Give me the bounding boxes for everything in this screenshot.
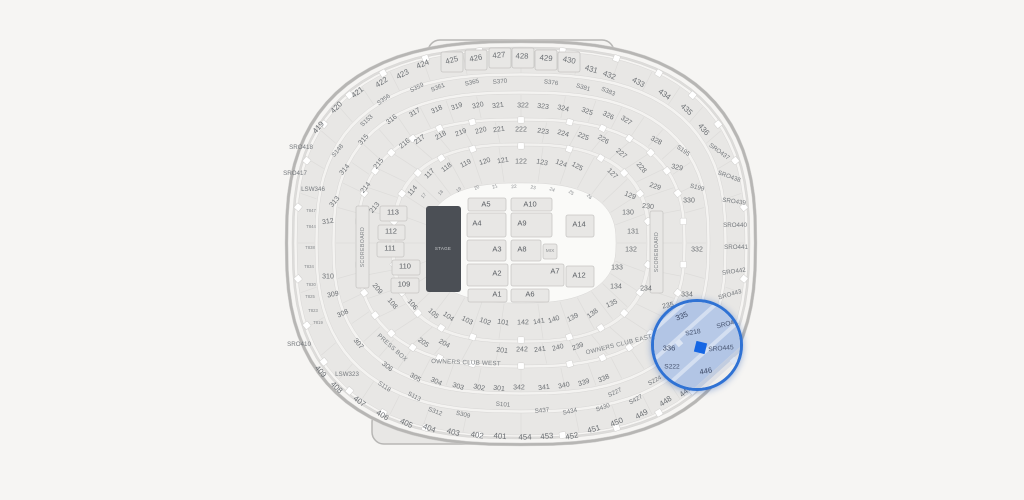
section-135[interactable]: 135 xyxy=(605,298,619,309)
section-430[interactable]: 430 xyxy=(562,56,576,66)
section-432[interactable]: 432 xyxy=(602,70,617,82)
section-24: 24 xyxy=(549,187,556,194)
section-s118[interactable]: S118 xyxy=(376,380,391,393)
section-sro440[interactable]: SRO440 xyxy=(723,223,747,229)
section-s434[interactable]: S434 xyxy=(562,407,577,416)
section-209[interactable]: 209 xyxy=(371,282,384,295)
section-120[interactable]: 120 xyxy=(478,157,491,167)
section-102[interactable]: 102 xyxy=(478,317,491,327)
section-338[interactable]: 338 xyxy=(597,373,611,384)
section-20: 20 xyxy=(473,185,480,192)
section-141[interactable]: 141 xyxy=(533,318,546,327)
section-sro438[interactable]: SRO438 xyxy=(717,170,741,184)
section-lsw323[interactable]: LSW323 xyxy=(335,372,359,378)
section-310[interactable]: 310 xyxy=(322,274,334,281)
section-221[interactable]: 221 xyxy=(493,126,506,135)
section-21: 21 xyxy=(492,184,499,190)
section-239[interactable]: 239 xyxy=(571,342,584,353)
section-341[interactable]: 341 xyxy=(538,384,550,392)
section-312[interactable]: 312 xyxy=(322,218,335,227)
section-329[interactable]: 329 xyxy=(671,163,684,172)
lower-section-110-label[interactable]: 110 xyxy=(399,263,411,271)
section-123[interactable]: 123 xyxy=(536,158,549,167)
section-t844[interactable]: T844 xyxy=(306,225,316,229)
scoreboard-label: SCOREBOARD xyxy=(655,232,660,273)
section-423[interactable]: 423 xyxy=(395,69,410,82)
floor-section-a12-label[interactable]: A12 xyxy=(572,272,585,280)
section-t819[interactable]: T819 xyxy=(313,321,323,325)
section-140[interactable]: 140 xyxy=(547,315,560,325)
owners-club-west-label: OWNERS CLUB WEST xyxy=(431,359,501,368)
press-box-label: PRESS BOX xyxy=(376,333,408,363)
section-lsw346[interactable]: LSW346 xyxy=(301,187,325,193)
section-s361[interactable]: S361 xyxy=(430,82,446,93)
section-339[interactable]: 339 xyxy=(577,378,590,388)
section-s381[interactable]: S381 xyxy=(575,83,591,93)
section-404[interactable]: 404 xyxy=(422,423,437,435)
lower-section-112-label[interactable]: 112 xyxy=(385,228,397,236)
stage-label: STAGE xyxy=(435,247,451,252)
section-425[interactable]: 425 xyxy=(445,55,460,66)
section-321[interactable]: 321 xyxy=(492,102,504,110)
section-434[interactable]: 434 xyxy=(656,88,671,102)
lower-section-111-label[interactable]: 111 xyxy=(384,245,395,253)
section-332[interactable]: 332 xyxy=(691,247,703,254)
section-s148[interactable]: S148 xyxy=(331,143,345,158)
section-s312[interactable]: S312 xyxy=(427,407,443,418)
section-315[interactable]: 315 xyxy=(358,133,371,146)
section-sro442[interactable]: SRO442 xyxy=(722,267,746,276)
owners-club-east-label: OWNERS CLUB EAST xyxy=(585,334,653,356)
section-340[interactable]: 340 xyxy=(558,381,571,390)
section-205[interactable]: 205 xyxy=(416,337,430,350)
section-106[interactable]: 106 xyxy=(406,298,419,311)
section-s376[interactable]: S376 xyxy=(543,79,558,87)
section-317[interactable]: 317 xyxy=(408,107,422,119)
section-222[interactable]: 222 xyxy=(515,127,527,134)
floor-section-a6-label[interactable]: A6 xyxy=(525,291,534,299)
section-228[interactable]: 228 xyxy=(635,161,648,174)
floor-section-a5-label[interactable]: A5 xyxy=(481,201,490,209)
lower-section-113-label[interactable]: 113 xyxy=(387,209,399,217)
section-229[interactable]: 229 xyxy=(648,182,661,192)
section-223[interactable]: 223 xyxy=(537,128,550,137)
section-323[interactable]: 323 xyxy=(537,103,549,111)
section-230[interactable]: 230 xyxy=(642,203,654,211)
floor-section-a9-label[interactable]: A9 xyxy=(517,220,526,228)
section-227[interactable]: 227 xyxy=(614,148,627,161)
section-101[interactable]: 101 xyxy=(497,319,510,328)
section-316[interactable]: 316 xyxy=(385,114,399,127)
section-204[interactable]: 204 xyxy=(437,338,451,350)
section-216[interactable]: 216 xyxy=(398,138,411,151)
section-133[interactable]: 133 xyxy=(611,265,623,272)
section-218[interactable]: 218 xyxy=(434,130,448,142)
section-labels-layer: A5A10A4A9A14A3A8MIXA2A7A12A1A61131121111… xyxy=(0,0,1024,500)
section-408[interactable]: 408 xyxy=(329,381,344,396)
magnified-section-336[interactable]: 336 xyxy=(663,345,676,353)
section-138[interactable]: 138 xyxy=(586,308,600,321)
section-448[interactable]: 448 xyxy=(658,395,673,409)
section-18: 18 xyxy=(437,189,444,196)
section-s370[interactable]: S370 xyxy=(492,78,507,86)
section-219[interactable]: 219 xyxy=(454,128,467,139)
section-325[interactable]: 325 xyxy=(580,107,593,118)
seat-map-viewport[interactable]: A5A10A4A9A14A3A8MIXA2A7A12A1A61131121111… xyxy=(0,0,1024,500)
section-26: 26 xyxy=(585,193,592,200)
section-326[interactable]: 326 xyxy=(601,110,615,122)
section-450[interactable]: 450 xyxy=(610,417,625,429)
section-302[interactable]: 302 xyxy=(473,383,486,392)
section-305[interactable]: 305 xyxy=(408,372,422,384)
section-s430[interactable]: S430 xyxy=(595,403,611,414)
section-19: 19 xyxy=(455,186,462,193)
section-104[interactable]: 104 xyxy=(441,311,455,324)
section-s427[interactable]: S427 xyxy=(628,394,644,406)
section-240[interactable]: 240 xyxy=(551,343,564,353)
section-328[interactable]: 328 xyxy=(649,135,663,147)
section-sro410[interactable]: SRO410 xyxy=(287,342,311,348)
section-214[interactable]: 214 xyxy=(360,181,373,194)
section-118[interactable]: 118 xyxy=(440,162,453,174)
section-421[interactable]: 421 xyxy=(350,86,365,100)
section-428[interactable]: 428 xyxy=(515,53,528,61)
section-405[interactable]: 405 xyxy=(398,418,413,431)
section-342[interactable]: 342 xyxy=(513,384,525,391)
section-119[interactable]: 119 xyxy=(459,158,472,169)
floor-section-mix-label[interactable]: MIX xyxy=(546,249,555,254)
section-319[interactable]: 319 xyxy=(450,102,463,112)
section-318[interactable]: 318 xyxy=(430,104,444,115)
section-103[interactable]: 103 xyxy=(460,315,474,327)
section-sro417[interactable]: SRO417 xyxy=(283,171,307,177)
section-304[interactable]: 304 xyxy=(429,376,443,387)
section-s227[interactable]: S227 xyxy=(607,387,623,399)
section-449[interactable]: 449 xyxy=(634,409,649,422)
section-201[interactable]: 201 xyxy=(496,347,508,355)
section-122[interactable]: 122 xyxy=(515,159,527,166)
section-125[interactable]: 125 xyxy=(570,161,584,173)
section-426[interactable]: 426 xyxy=(469,54,483,64)
lower-section-109-label[interactable]: 109 xyxy=(398,281,411,289)
section-s199[interactable]: S199 xyxy=(689,183,705,193)
section-129[interactable]: 129 xyxy=(623,191,636,202)
section-t825[interactable]: T825 xyxy=(305,295,315,299)
section-s113[interactable]: S113 xyxy=(406,391,421,403)
section-431[interactable]: 431 xyxy=(584,64,599,75)
section-422[interactable]: 422 xyxy=(374,76,389,90)
section-t834[interactable]: T834 xyxy=(304,265,314,269)
section-309[interactable]: 309 xyxy=(327,290,340,299)
section-220[interactable]: 220 xyxy=(474,126,487,136)
section-217[interactable]: 217 xyxy=(413,134,427,147)
section-17: 17 xyxy=(420,192,427,199)
section-241[interactable]: 241 xyxy=(534,346,546,354)
section-324[interactable]: 324 xyxy=(557,104,570,113)
floor-section-a7-label[interactable]: A7 xyxy=(550,268,559,276)
section-215[interactable]: 215 xyxy=(373,157,386,170)
section-454[interactable]: 454 xyxy=(518,434,531,442)
section-sro437[interactable]: SRO437 xyxy=(708,143,731,162)
section-234[interactable]: 234 xyxy=(640,286,652,293)
section-313[interactable]: 313 xyxy=(329,195,342,208)
section-213[interactable]: 213 xyxy=(369,201,382,214)
section-424[interactable]: 424 xyxy=(416,59,431,71)
section-436[interactable]: 436 xyxy=(696,123,710,138)
section-s437[interactable]: S437 xyxy=(535,407,550,415)
section-451[interactable]: 451 xyxy=(587,424,602,435)
section-117[interactable]: 117 xyxy=(424,168,437,181)
section-327[interactable]: 327 xyxy=(619,115,633,127)
section-419[interactable]: 419 xyxy=(312,121,326,136)
floor-section-a8-label[interactable]: A8 xyxy=(517,246,526,254)
section-t823[interactable]: T823 xyxy=(308,309,318,313)
floor-section-a4-label[interactable]: A4 xyxy=(472,220,481,228)
section-226[interactable]: 226 xyxy=(596,134,610,146)
section-409[interactable]: 409 xyxy=(313,365,327,380)
magnified-section-s222[interactable]: S222 xyxy=(664,364,679,371)
section-314[interactable]: 314 xyxy=(339,163,352,176)
floor-section-a10-label[interactable]: A10 xyxy=(523,201,536,209)
floor-section-a14-label[interactable]: A14 xyxy=(572,221,585,229)
selected-section-marker[interactable] xyxy=(693,340,706,353)
floor-section-a1-label[interactable]: A1 xyxy=(492,291,501,299)
section-406[interactable]: 406 xyxy=(374,409,389,422)
section-402[interactable]: 402 xyxy=(470,431,484,441)
section-s383[interactable]: S383 xyxy=(600,86,616,97)
section-307[interactable]: 307 xyxy=(352,337,365,350)
section-427[interactable]: 427 xyxy=(492,52,506,61)
section-242[interactable]: 242 xyxy=(516,346,528,353)
section-334[interactable]: 334 xyxy=(681,292,693,299)
section-105[interactable]: 105 xyxy=(426,307,439,320)
section-134[interactable]: 134 xyxy=(610,284,622,291)
section-114[interactable]: 114 xyxy=(407,184,420,197)
section-301[interactable]: 301 xyxy=(493,385,505,393)
zoom-magnifier[interactable]: 335S218336SRO444SRO445446S222 xyxy=(651,299,743,391)
section-429[interactable]: 429 xyxy=(539,54,553,63)
section-433[interactable]: 433 xyxy=(630,76,645,89)
section-403[interactable]: 403 xyxy=(446,428,461,439)
section-t847[interactable]: T847 xyxy=(306,209,316,213)
section-306[interactable]: 306 xyxy=(380,361,393,374)
section-121[interactable]: 121 xyxy=(497,157,510,166)
section-25: 25 xyxy=(567,189,574,196)
section-s195[interactable]: S195 xyxy=(675,144,690,157)
section-s356[interactable]: S356 xyxy=(376,93,391,106)
section-401[interactable]: 401 xyxy=(493,433,507,442)
section-s153[interactable]: S153 xyxy=(360,114,375,128)
section-s365[interactable]: S365 xyxy=(464,78,479,87)
section-142[interactable]: 142 xyxy=(517,319,529,326)
section-130[interactable]: 130 xyxy=(622,210,634,217)
floor-section-a3-label[interactable]: A3 xyxy=(492,246,501,254)
section-308[interactable]: 308 xyxy=(336,308,350,319)
section-139[interactable]: 139 xyxy=(566,312,580,324)
section-sro441[interactable]: SRO441 xyxy=(724,245,748,251)
section-s101[interactable]: S101 xyxy=(496,401,511,408)
section-452[interactable]: 452 xyxy=(565,432,579,442)
section-453[interactable]: 453 xyxy=(540,432,554,441)
section-t838[interactable]: T838 xyxy=(305,246,315,250)
section-435[interactable]: 435 xyxy=(679,103,694,118)
section-320[interactable]: 320 xyxy=(472,101,485,110)
section-sro443[interactable]: SRO443 xyxy=(718,289,743,302)
section-t830[interactable]: T830 xyxy=(306,283,316,287)
section-407[interactable]: 407 xyxy=(351,395,366,409)
section-131[interactable]: 131 xyxy=(627,229,639,236)
section-124[interactable]: 124 xyxy=(554,159,567,170)
section-330[interactable]: 330 xyxy=(683,198,695,205)
section-s359[interactable]: S359 xyxy=(409,82,425,94)
section-108[interactable]: 108 xyxy=(386,297,399,310)
scoreboard-label: SCOREBOARD xyxy=(361,227,366,268)
section-322[interactable]: 322 xyxy=(517,102,529,109)
section-sro418[interactable]: SRO418 xyxy=(289,145,313,151)
floor-section-a2-label[interactable]: A2 xyxy=(492,270,501,278)
section-303[interactable]: 303 xyxy=(451,382,464,392)
section-224[interactable]: 224 xyxy=(556,129,569,139)
section-127[interactable]: 127 xyxy=(605,167,618,180)
section-420[interactable]: 420 xyxy=(330,101,345,116)
section-22: 22 xyxy=(511,184,517,189)
section-sro439[interactable]: SRO439 xyxy=(722,197,746,206)
section-s309[interactable]: S309 xyxy=(455,410,471,420)
section-23: 23 xyxy=(530,185,536,191)
section-132[interactable]: 132 xyxy=(625,247,637,254)
section-225[interactable]: 225 xyxy=(576,131,589,142)
